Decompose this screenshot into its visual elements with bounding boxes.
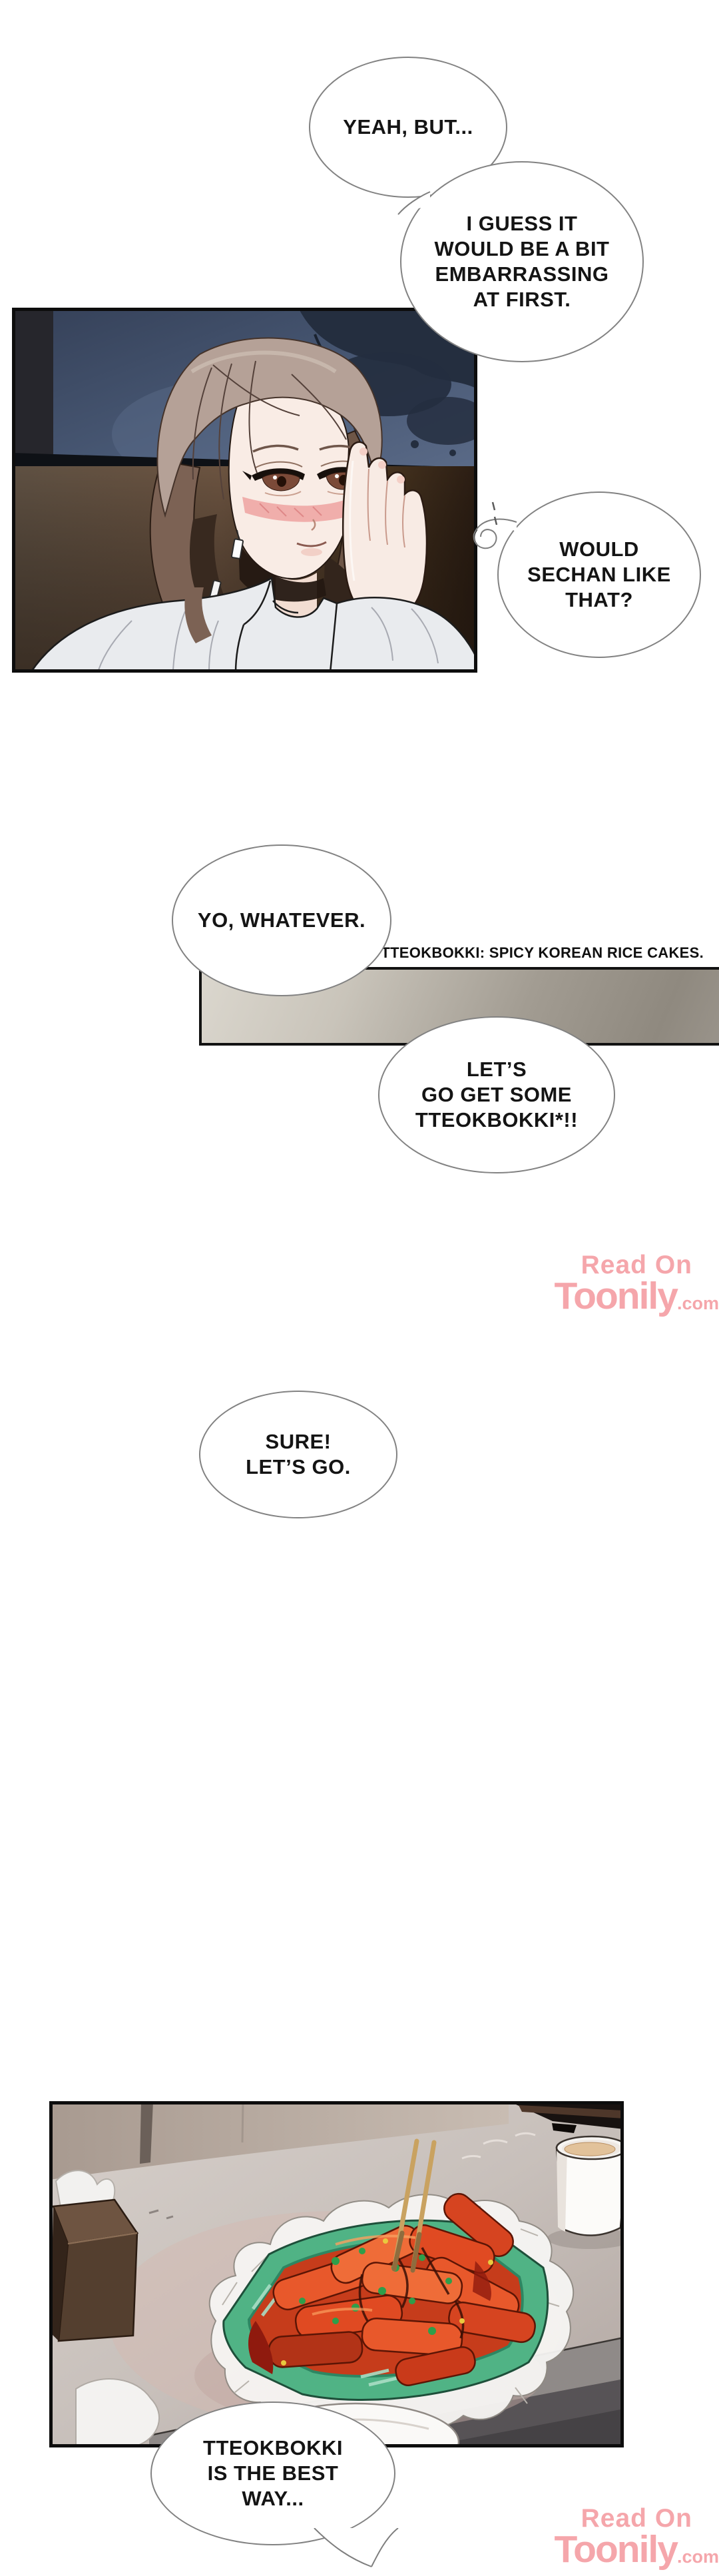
panel-woman-art — [12, 308, 477, 673]
bubble-line: I GUESS IT — [467, 211, 578, 236]
toonily-logo: Toonily — [555, 1279, 677, 1313]
watermark-tld: .com — [677, 2547, 719, 2567]
bubble-line: GO GET SOME — [421, 1082, 572, 1108]
bubble-line: THAT? — [565, 587, 633, 613]
watermark-tld: .com — [677, 1293, 719, 1313]
bubble-line: EMBARRASSING — [435, 262, 609, 287]
toonily-watermark: Read On Toonily.com — [545, 1252, 719, 1313]
panel-food-illustration — [49, 2101, 624, 2447]
bubble-line: IS THE BEST — [208, 2461, 339, 2486]
bubble-line: AT FIRST. — [473, 287, 571, 312]
speech-bubble-lets: LET’S GO GET SOME TTEOKBOKKI*!! — [378, 1016, 615, 1173]
bubble-line: WOULD BE A BIT — [434, 236, 609, 262]
webtoon-page: YEAH, BUT... I GUESS IT WOULD BE A BIT E… — [0, 0, 719, 2576]
wooden-box — [51, 2200, 137, 2341]
bubble-line: WOULD — [559, 537, 639, 562]
panel-woman-illustration — [12, 308, 477, 673]
speech-bubble-yo: YO, WHATEVER. — [172, 844, 391, 996]
speech-bubble-sechan: WOULD SECHAN LIKE THAT? — [497, 491, 701, 658]
bubble-tail-down — [313, 2528, 401, 2575]
toonily-watermark: Read On Toonily.com — [545, 2505, 719, 2567]
bubble-line: YEAH, BUT... — [343, 115, 473, 140]
bubble-joint-spike — [397, 188, 431, 217]
bubble-line: SURE! — [266, 1429, 332, 1454]
toonily-logo: Toonily — [555, 2532, 677, 2567]
paper-cup — [547, 2136, 624, 2249]
panel-food-art — [49, 2101, 624, 2447]
speech-bubble-best: TTEOKBOKKI IS THE BEST WAY... — [150, 2402, 395, 2545]
bubble-line: YO, WHATEVER. — [198, 908, 365, 933]
bubble-line: TTEOKBOKKI*!! — [415, 1108, 578, 1133]
wall-left-strip — [12, 308, 53, 465]
bubble-line: WAY... — [242, 2486, 304, 2511]
bubble-line: SECHAN LIKE — [527, 562, 671, 587]
bubble-line: TTEOKBOKKI — [203, 2435, 343, 2461]
bubble-line: LET’S — [467, 1057, 527, 1082]
speech-bubble-iguess: I GUESS IT WOULD BE A BIT EMBARRASSING A… — [400, 161, 644, 362]
tick-marks — [485, 501, 502, 531]
speech-bubble-sure: SURE! LET’S GO. — [199, 1391, 397, 1518]
bubble-line: LET’S GO. — [246, 1454, 351, 1480]
